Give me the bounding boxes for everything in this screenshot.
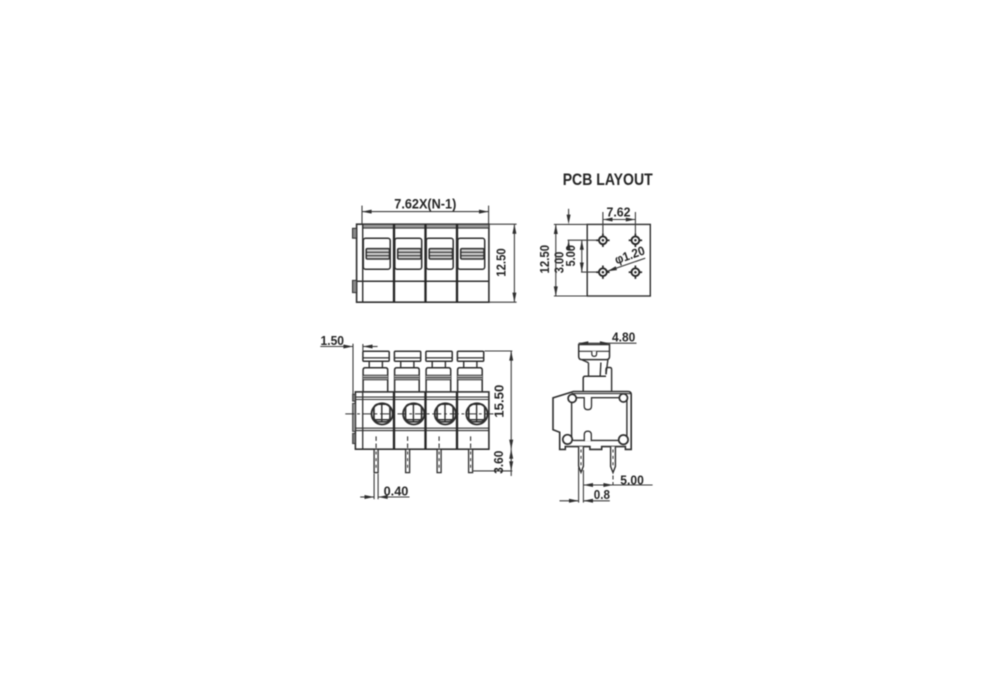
svg-text:4.80: 4.80	[612, 329, 635, 344]
svg-text:5.00: 5.00	[620, 472, 644, 487]
svg-text:PCB LAYOUT: PCB LAYOUT	[563, 170, 653, 189]
svg-text:1.50: 1.50	[321, 333, 345, 348]
svg-text:15.50: 15.50	[491, 385, 506, 418]
svg-text:12.50: 12.50	[537, 245, 552, 274]
svg-text:3.60: 3.60	[491, 451, 506, 474]
svg-text:0.40: 0.40	[384, 484, 409, 499]
svg-text:0.8: 0.8	[594, 487, 610, 502]
svg-text:7.62X(N-1): 7.62X(N-1)	[394, 196, 456, 211]
svg-text:7.62: 7.62	[607, 204, 631, 219]
svg-text:12.50: 12.50	[494, 248, 509, 277]
svg-text:5.00: 5.00	[563, 245, 578, 266]
